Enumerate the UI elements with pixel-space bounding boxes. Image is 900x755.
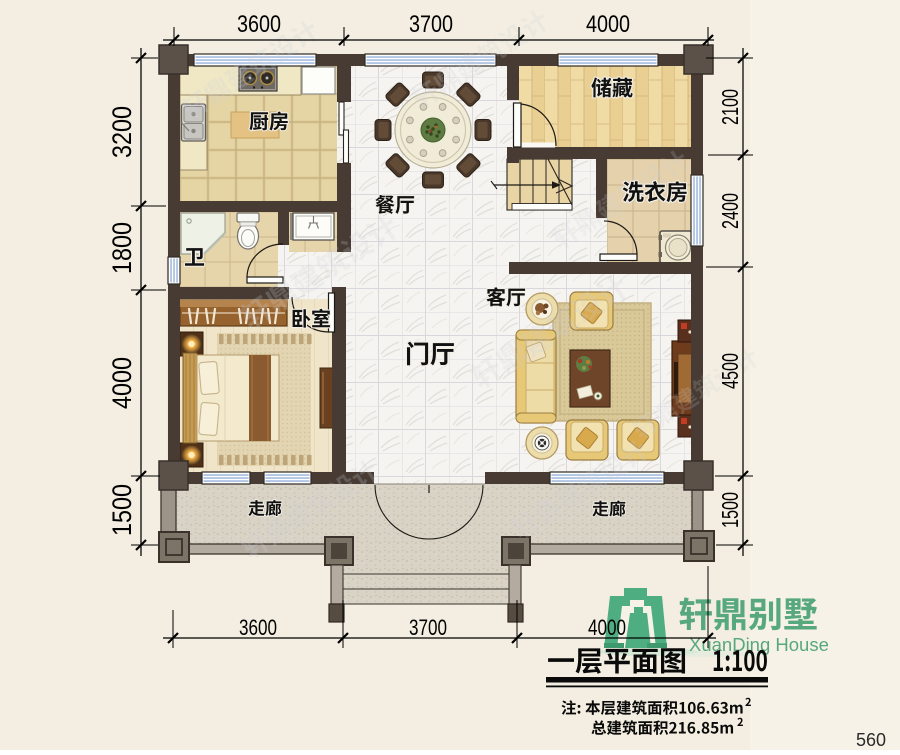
svg-text:2400: 2400: [717, 193, 743, 229]
svg-text:3600: 3600: [237, 11, 281, 38]
svg-text:1500: 1500: [107, 484, 137, 536]
svg-text:3700: 3700: [409, 11, 453, 38]
svg-text:3600: 3600: [239, 615, 277, 640]
svg-text:4500: 4500: [717, 353, 743, 389]
svg-text:3700: 3700: [409, 615, 447, 640]
svg-text:2100: 2100: [717, 89, 743, 125]
svg-text:1800: 1800: [107, 222, 137, 274]
svg-text:4000: 4000: [588, 615, 626, 640]
svg-text:3200: 3200: [107, 106, 137, 158]
svg-text:1500: 1500: [717, 492, 743, 528]
svg-text:4000: 4000: [586, 11, 630, 38]
svg-text:4000: 4000: [107, 357, 137, 409]
svg-text:560: 560: [856, 730, 886, 750]
